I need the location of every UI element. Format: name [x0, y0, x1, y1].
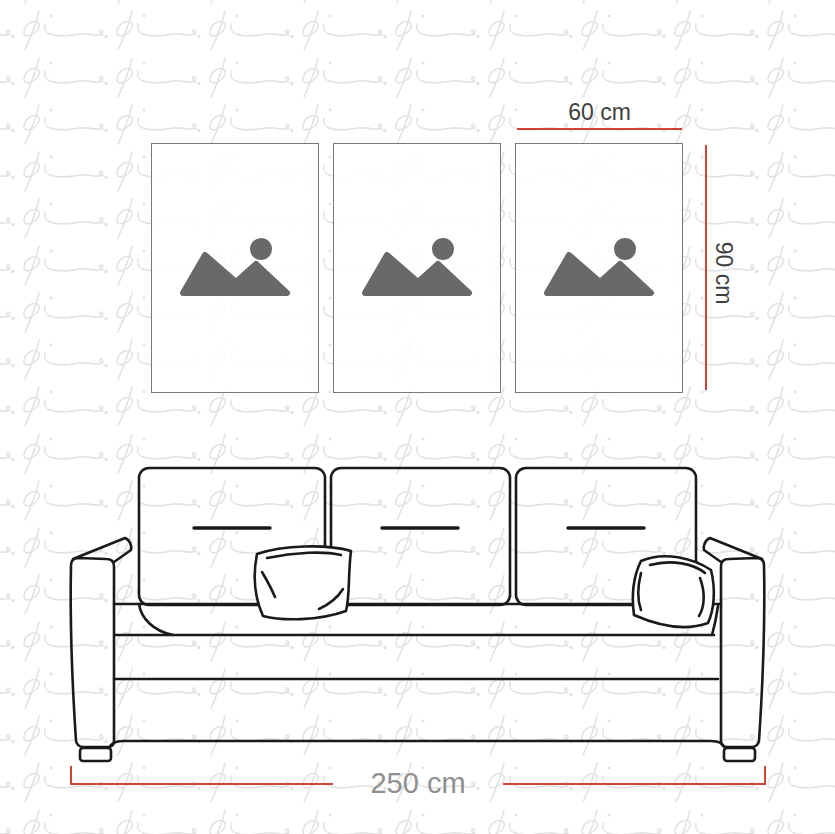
panel-height-dimension-line: [705, 145, 707, 390]
sofa-line-drawing: [0, 0, 835, 834]
throw-pillow-left: [255, 546, 351, 619]
sofa-seat-base: [109, 604, 725, 748]
sofa-armrest-left: [71, 538, 132, 747]
art-panel-2: [333, 143, 501, 393]
sofa-back-cushions: [139, 468, 696, 605]
sofa-width-dimension-tick-left: [70, 766, 72, 785]
sofa-width-dimension-tick-right: [764, 766, 766, 785]
art-panel-3: [515, 143, 683, 393]
sofa-width-label: 250 cm: [332, 767, 504, 800]
image-placeholder-icon: [358, 237, 476, 299]
image-placeholder-icon: [176, 237, 294, 299]
panel-height-label: 90 cm: [710, 242, 737, 305]
panel-width-label: 60 cm: [517, 99, 682, 126]
wall-art-size-guide-diagram: 60 cm 90 cm 250 cm: [0, 0, 835, 834]
art-panel-1: [151, 143, 319, 393]
sofa-armrest-right: [704, 538, 765, 747]
sofa-feet: [80, 748, 755, 761]
sofa-width-dimension-line-right: [503, 783, 766, 785]
image-placeholder-icon: [540, 237, 658, 299]
sofa-width-dimension-line-left: [71, 783, 333, 785]
panel-width-dimension-line: [517, 128, 682, 130]
throw-pillow-right: [633, 556, 714, 627]
